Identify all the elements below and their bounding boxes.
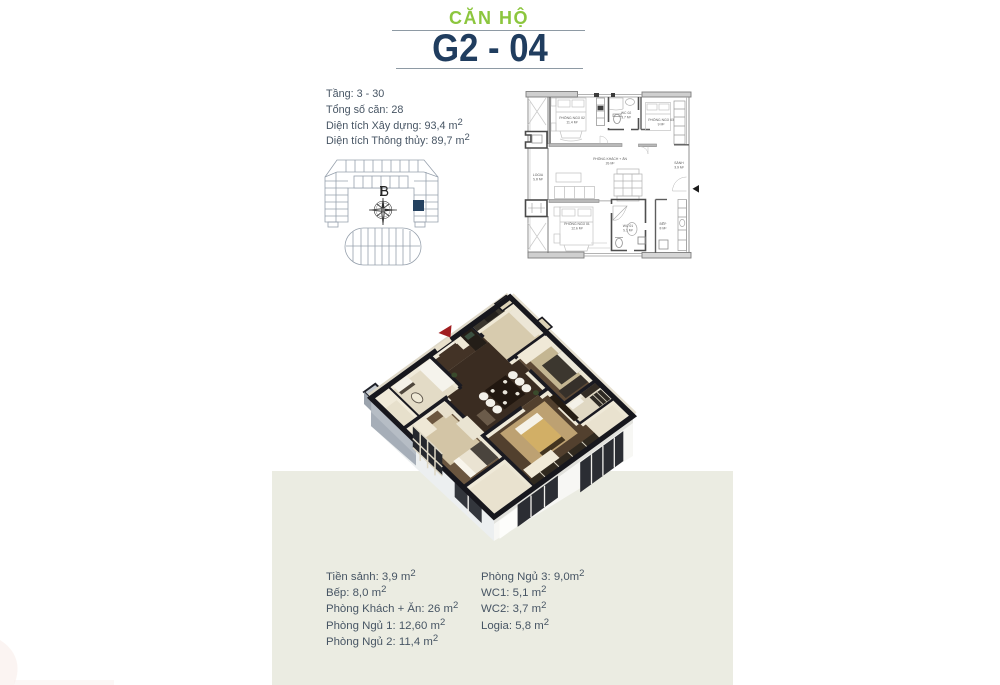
svg-text:12.6 M²: 12.6 M² — [571, 226, 583, 230]
svg-text:5.8 M²: 5.8 M² — [533, 177, 543, 181]
svg-text:WC 01: WC 01 — [623, 224, 633, 228]
svg-text:SẢNH: SẢNH — [674, 160, 684, 165]
svg-text:PHÒNG NGỦ 03: PHÒNG NGỦ 03 — [648, 117, 674, 122]
svg-text:8 M²: 8 M² — [660, 226, 668, 230]
svg-text:5.1 M²: 5.1 M² — [623, 228, 633, 232]
svg-text:3.9 M²: 3.9 M² — [674, 165, 684, 169]
svg-text:WC 02: WC 02 — [621, 111, 631, 115]
svg-text:9 M²: 9 M² — [658, 122, 666, 126]
svg-text:11.4 M²: 11.4 M² — [566, 120, 578, 124]
svg-text:PHÒNG NGỦ 01: PHÒNG NGỦ 01 — [564, 221, 590, 226]
svg-text:BẾP: BẾP — [660, 221, 668, 226]
svg-text:PHÒNG NGỦ 02: PHÒNG NGỦ 02 — [559, 115, 585, 120]
svg-text:3.7 M²: 3.7 M² — [621, 115, 631, 119]
svg-text:26 M²: 26 M² — [606, 161, 616, 165]
svg-text:PHÒNG KHÁCH + ĂN: PHÒNG KHÁCH + ĂN — [593, 156, 627, 161]
svg-text:LOGIA: LOGIA — [533, 173, 544, 177]
